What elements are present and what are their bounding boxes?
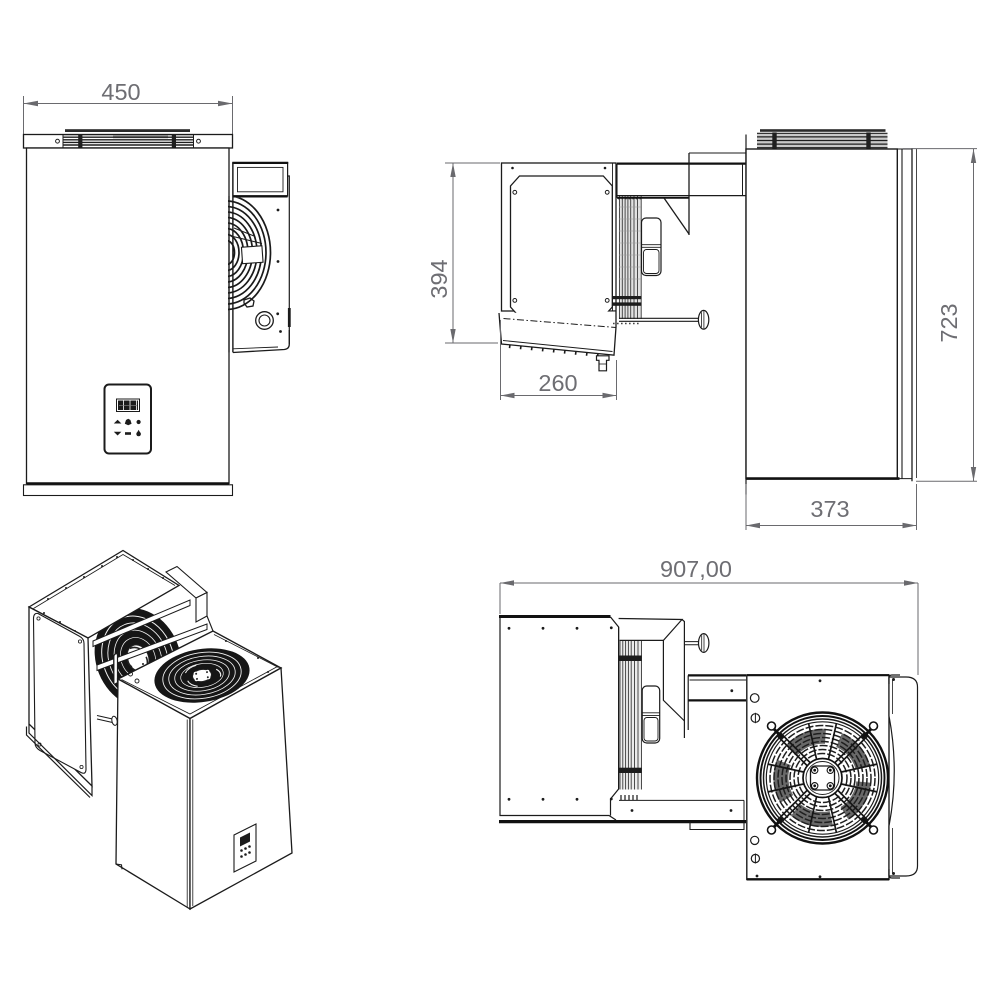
svg-text:450: 450 <box>101 79 140 105</box>
svg-text:907,00: 907,00 <box>660 556 732 582</box>
svg-text:394: 394 <box>426 259 452 298</box>
svg-text:373: 373 <box>810 496 849 522</box>
svg-text:723: 723 <box>936 303 962 342</box>
svg-text:260: 260 <box>538 370 577 396</box>
